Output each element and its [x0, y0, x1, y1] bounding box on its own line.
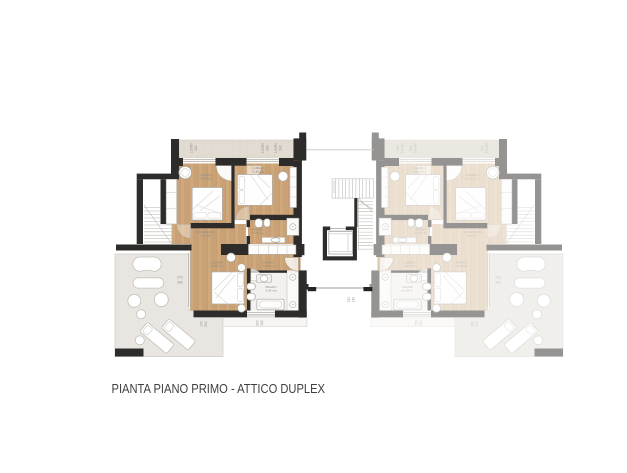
svg-text:PIANTA PIANO PRIMO - ATTICO DU: PIANTA PIANO PRIMO - ATTICO DUPLEX	[112, 381, 326, 396]
svg-text:150: 150	[347, 297, 351, 303]
svg-text:140: 140	[352, 297, 356, 303]
